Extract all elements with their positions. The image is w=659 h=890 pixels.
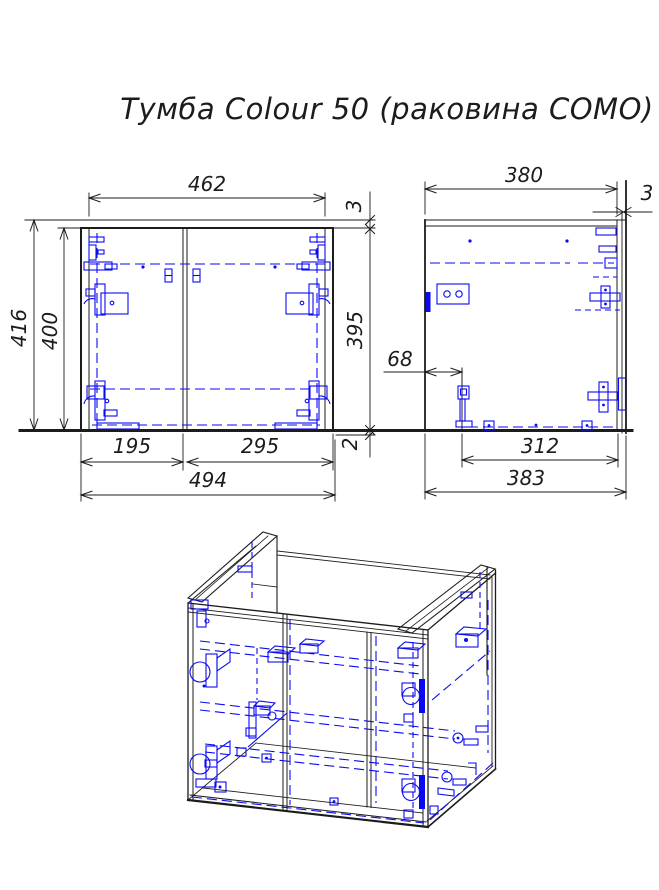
side-view: 380 3 68 312 383: [384, 163, 653, 499]
drawing-title: Тумба Colour 50 (раковина COMO): [120, 92, 653, 126]
svg-text:312: 312: [521, 434, 559, 458]
iso-hardware: [190, 542, 493, 823]
front-view-carcass: [25, 220, 375, 435]
dim-front-right-door: 295: [187, 434, 333, 470]
dim-side-bottom-recess: 68: [384, 347, 462, 372]
svg-text:3: 3: [342, 200, 366, 213]
dim-front-left-door: 195: [81, 434, 183, 470]
svg-text:3: 3: [641, 181, 654, 205]
svg-text:195: 195: [113, 434, 151, 458]
dim-front-overall-height: 416: [7, 220, 34, 430]
drawing-page: Тумба Colour 50 (раковина COMO): [0, 0, 659, 890]
svg-text:395: 395: [343, 311, 367, 349]
svg-text:416: 416: [7, 309, 31, 347]
front-view-hardware: [84, 233, 330, 429]
dim-side-top-depth: 380: [425, 163, 617, 214]
svg-text:68: 68: [387, 347, 412, 371]
technical-drawing: Тумба Colour 50 (раковина COMO): [0, 0, 659, 890]
side-view-hardware: [426, 228, 626, 430]
svg-text:494: 494: [189, 468, 227, 492]
svg-text:295: 295: [241, 434, 279, 458]
svg-text:400: 400: [38, 312, 62, 350]
front-view: 462 416 400 3 395 2 195: [7, 172, 375, 501]
dim-front-right-stack: 3 395 2: [338, 192, 375, 457]
svg-text:462: 462: [188, 172, 226, 196]
dim-front-top-panel-width: 462: [89, 172, 325, 216]
dim-side-back-panel: 3: [616, 181, 653, 217]
svg-text:383: 383: [507, 466, 545, 490]
svg-text:2: 2: [338, 438, 362, 451]
svg-text:380: 380: [505, 163, 543, 187]
dim-side-bottom-depth: 312: [462, 434, 618, 467]
dim-front-carcass-height: 400: [38, 228, 64, 430]
iso-view: [188, 532, 496, 827]
iso-carcass: [188, 532, 496, 827]
